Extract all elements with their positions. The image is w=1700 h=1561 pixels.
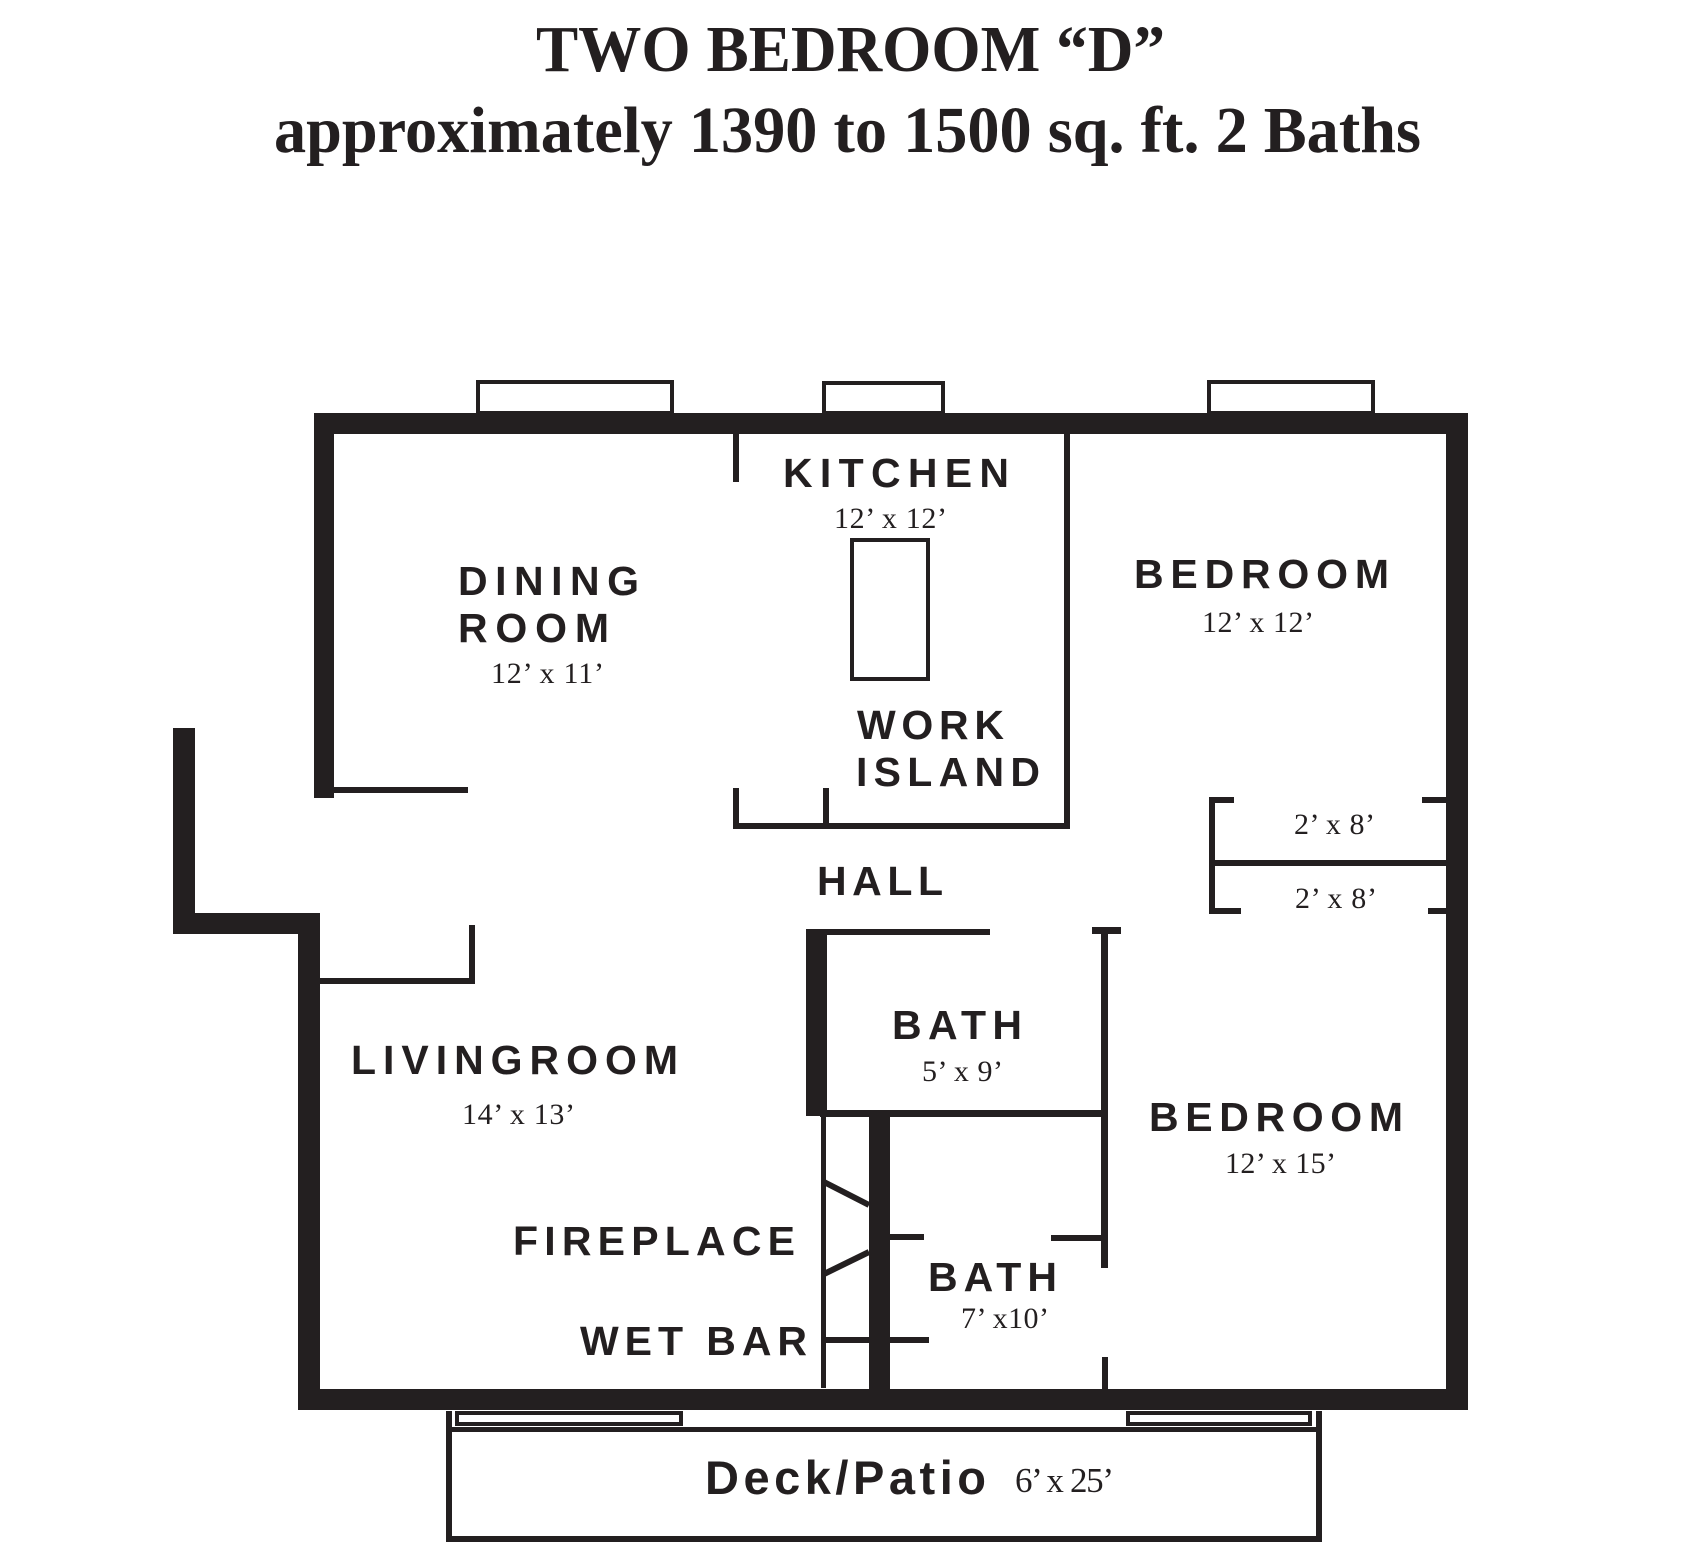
svg-text:2’ x 8’: 2’ x 8’ — [1295, 882, 1377, 915]
svg-text:7’ x10’: 7’ x10’ — [961, 1302, 1049, 1335]
svg-text:TWO BEDROOM “D”: TWO BEDROOM “D” — [536, 13, 1165, 86]
svg-text:KITCHEN: KITCHEN — [783, 450, 1009, 496]
svg-text:6’ x 25’: 6’ x 25’ — [1015, 1461, 1114, 1500]
svg-text:WET BAR: WET BAR — [580, 1318, 807, 1364]
svg-text:ISLAND: ISLAND — [856, 749, 1040, 795]
svg-text:LIVINGROOM: LIVINGROOM — [351, 1037, 678, 1083]
svg-text:12’ x 11’: 12’ x 11’ — [491, 657, 604, 690]
svg-text:2’ x 8’: 2’ x 8’ — [1294, 808, 1375, 841]
svg-text:BEDROOM: BEDROOM — [1149, 1094, 1403, 1140]
svg-text:Deck/Patio: Deck/Patio — [705, 1451, 986, 1504]
svg-text:FIREPLACE: FIREPLACE — [513, 1218, 795, 1264]
svg-text:12’ x 12’: 12’ x 12’ — [834, 502, 947, 535]
svg-text:DINING: DINING — [458, 558, 639, 604]
svg-text:ROOM: ROOM — [458, 605, 609, 651]
svg-text:BATH: BATH — [892, 1002, 1022, 1048]
svg-text:WORK: WORK — [857, 702, 1004, 748]
svg-text:12’ x 12’: 12’ x 12’ — [1202, 606, 1314, 639]
svg-text:BATH: BATH — [928, 1254, 1057, 1300]
svg-text:12’ x 15’: 12’ x 15’ — [1225, 1147, 1336, 1180]
svg-text:HALL: HALL — [817, 858, 943, 904]
svg-text:14’ x 13’: 14’ x 13’ — [462, 1098, 575, 1131]
svg-text:5’ x 9’: 5’ x 9’ — [922, 1055, 1003, 1088]
svg-text:approximately 1390 to 1500 sq.: approximately 1390 to 1500 sq. ft. 2 Bat… — [274, 94, 1421, 167]
svg-text:BEDROOM: BEDROOM — [1134, 551, 1389, 597]
